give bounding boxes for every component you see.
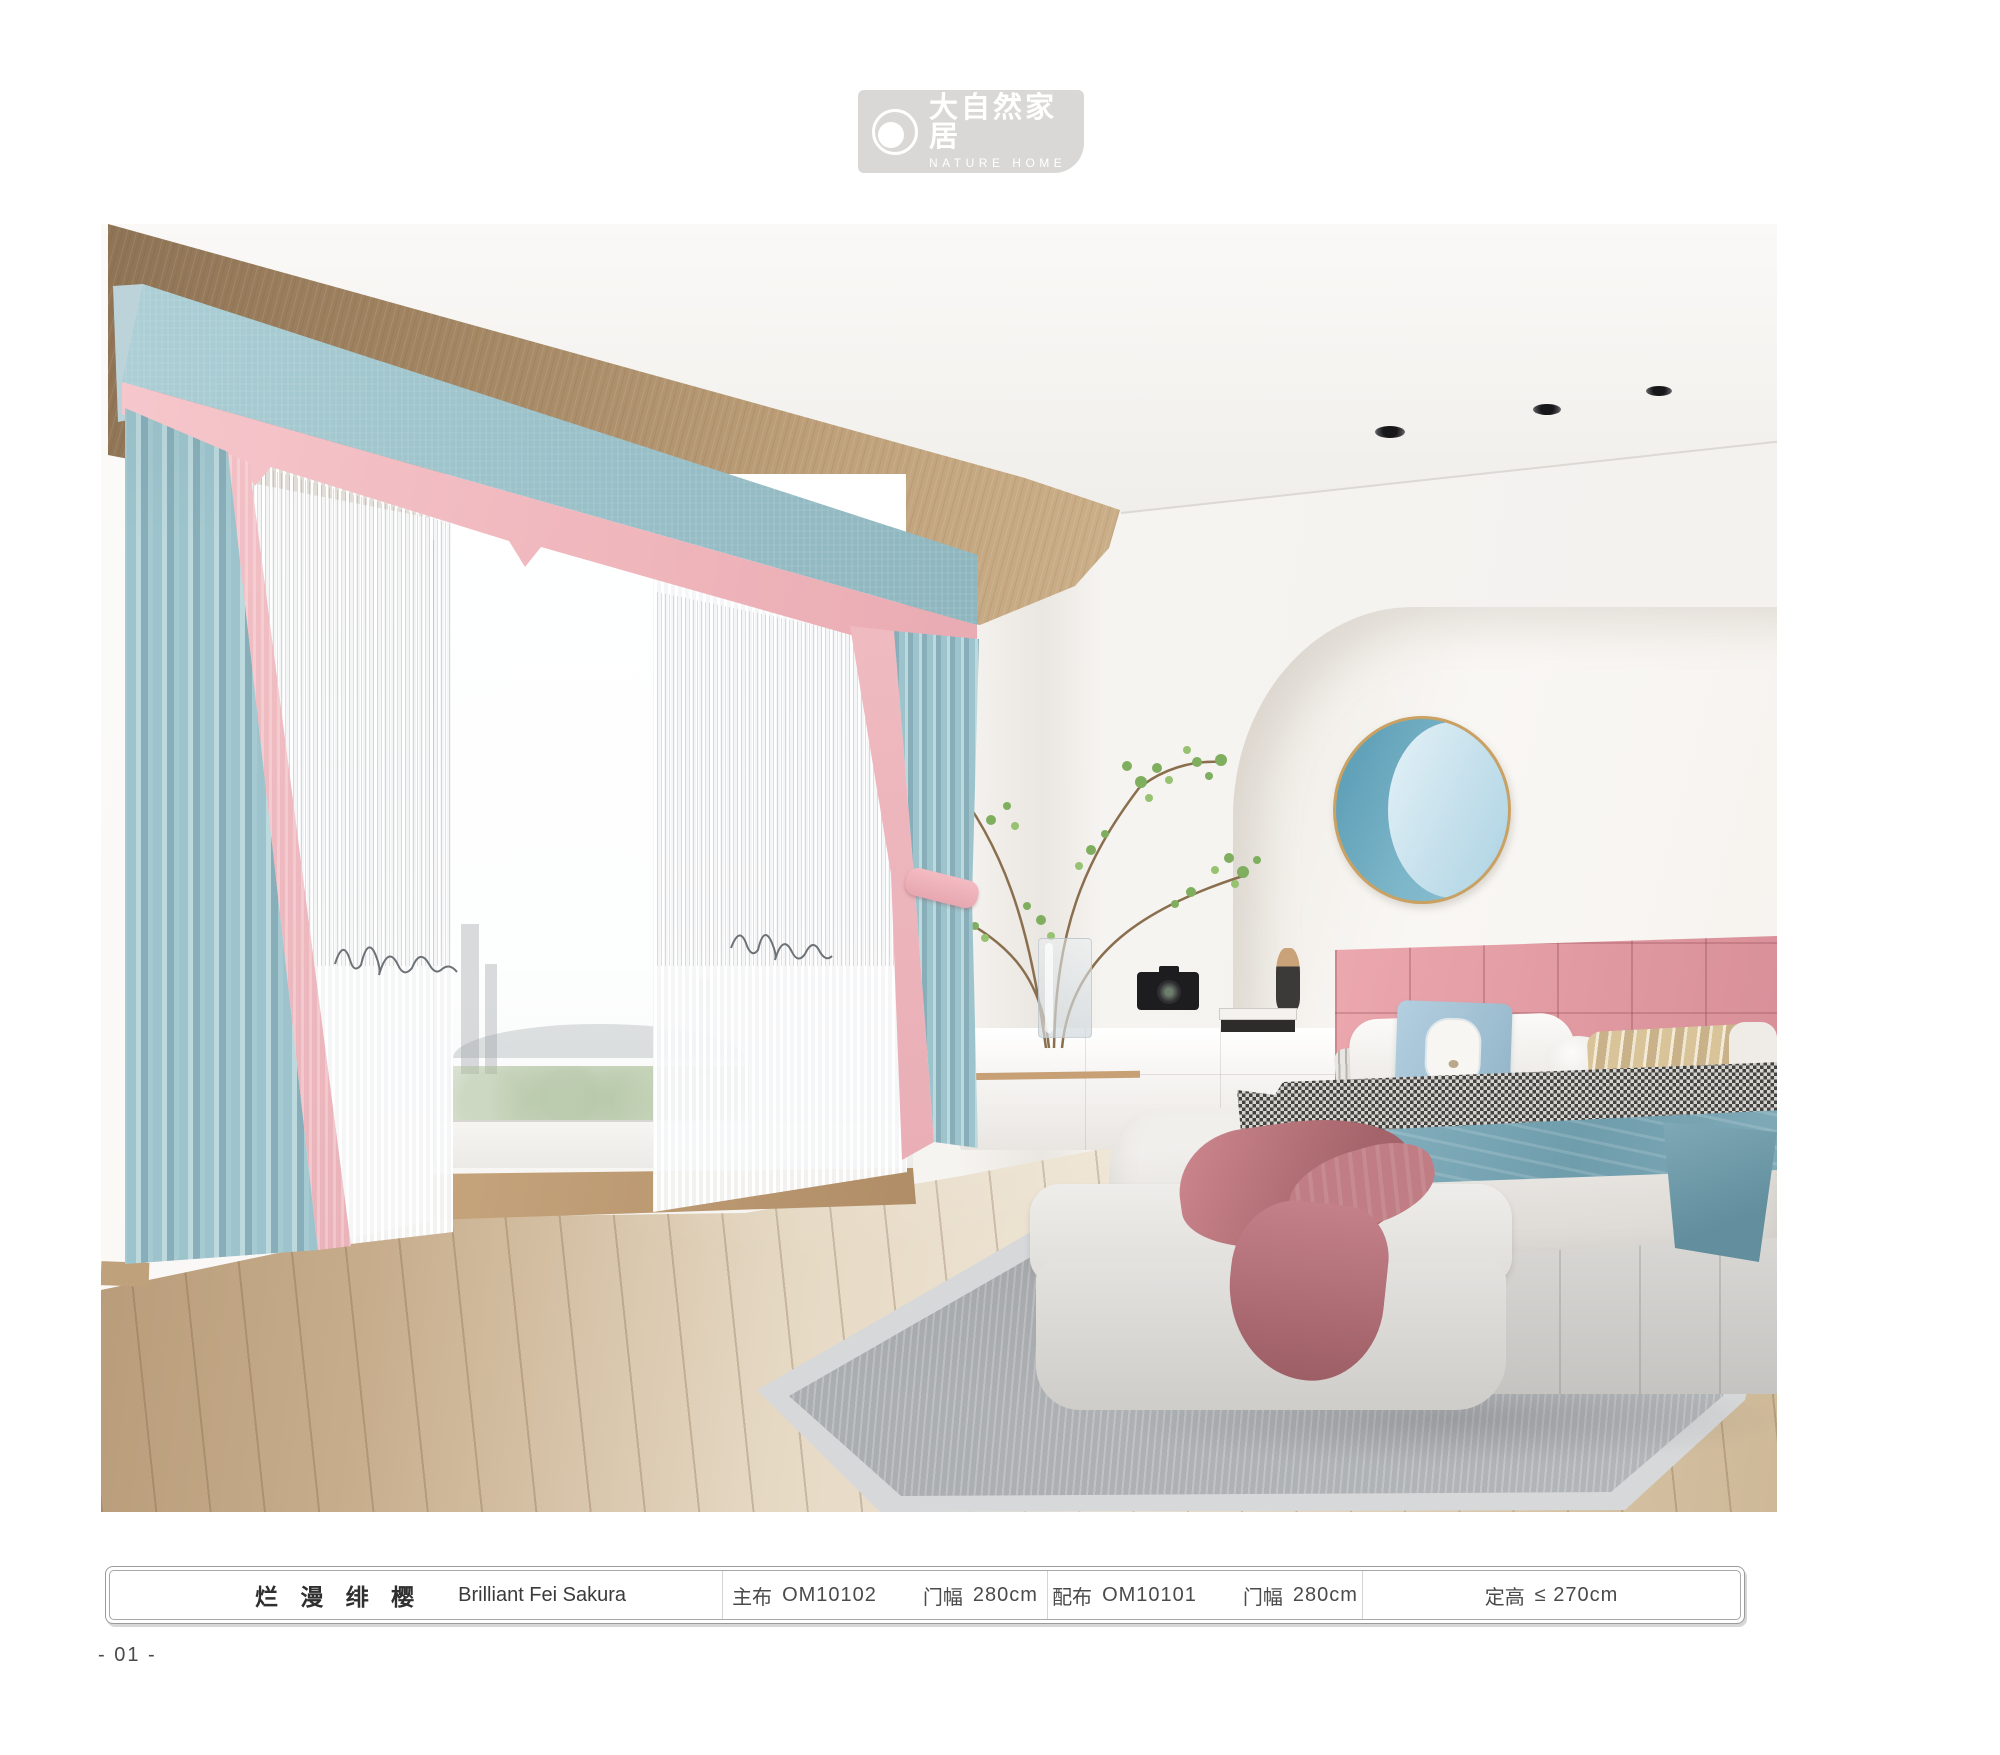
brand-name-cn: 大自然家居: [929, 94, 1084, 152]
brand-badge: 大自然家居 NATURE HOME: [858, 90, 1084, 173]
sheer-squiggle-embroidery: [333, 924, 463, 984]
product-info-inner: 烂 漫 绯 樱 Brilliant Fei Sakura 主布 OM10102 …: [109, 1570, 1741, 1620]
companion-width-label: 门幅: [1243, 1581, 1283, 1610]
brand-logo-icon: [872, 109, 918, 155]
companion-width-value: 280cm: [1293, 1584, 1358, 1607]
brand-name-en: NATURE HOME: [929, 157, 1084, 169]
product-name-en: Brilliant Fei Sakura: [458, 1584, 626, 1607]
product-info-bar: 烂 漫 绯 樱 Brilliant Fei Sakura 主布 OM10102 …: [105, 1566, 1745, 1624]
baseboard: [101, 1261, 149, 1287]
blue-blanket-drape: [1657, 1122, 1777, 1262]
book: [1219, 1008, 1297, 1020]
sideboard-wood-trim: [962, 1071, 1140, 1080]
main-width-label: 门幅: [923, 1581, 963, 1610]
companion-fabric-cell: 配布 OM10101 门幅 280cm: [1047, 1571, 1362, 1619]
fixed-height-label: 定高: [1485, 1581, 1525, 1610]
round-wall-art: [1333, 716, 1511, 904]
sheer-squiggle-embroidery: [729, 914, 844, 969]
ceiling-spotlight: [1375, 426, 1405, 438]
wall-art-face: [1388, 722, 1508, 899]
main-width-value: 280cm: [973, 1584, 1038, 1607]
book-stack: [1219, 1008, 1297, 1034]
ceiling-spotlight: [1533, 404, 1561, 415]
companion-fabric-code: OM10101: [1102, 1584, 1197, 1607]
main-fabric-cell: 主布 OM10102 门幅 280cm: [722, 1571, 1047, 1619]
companion-fabric-label: 配布: [1052, 1581, 1092, 1610]
camera: [1137, 972, 1199, 1010]
main-fabric-label: 主布: [732, 1581, 772, 1610]
ceiling-spotlight: [1646, 386, 1672, 396]
wall-art-crescent: [1336, 719, 1508, 901]
product-name-cn: 烂 漫 绯 樱: [255, 1578, 422, 1612]
main-fabric-code: OM10102: [782, 1584, 877, 1607]
fixed-height-value: ≤ 270cm: [1535, 1584, 1619, 1607]
product-name-cell: 烂 漫 绯 樱 Brilliant Fei Sakura: [110, 1571, 722, 1619]
page-number: - 01 -: [98, 1644, 157, 1667]
product-scene-photo: [101, 224, 1777, 1512]
book: [1221, 1020, 1295, 1032]
glass-vase: [1038, 938, 1092, 1038]
fixed-height-cell: 定高 ≤ 270cm: [1362, 1571, 1740, 1619]
catalog-page: 大自然家居 NATURE HOME: [0, 0, 2000, 1755]
figurine: [1276, 948, 1300, 1010]
brand-logo-text: 大自然家居 NATURE HOME: [929, 94, 1084, 169]
